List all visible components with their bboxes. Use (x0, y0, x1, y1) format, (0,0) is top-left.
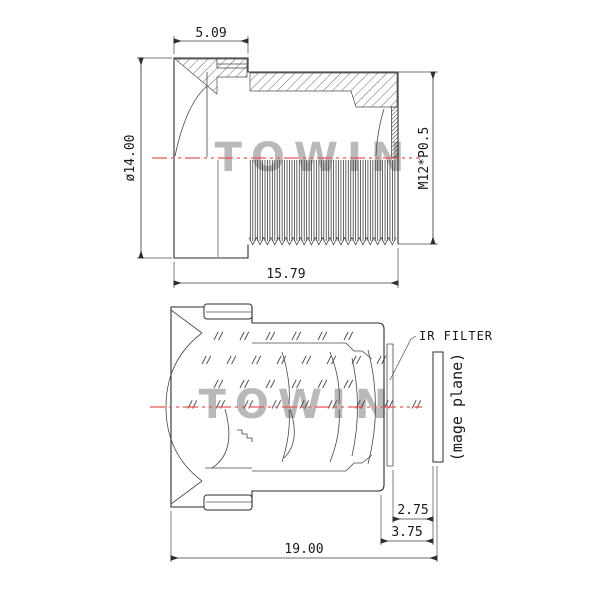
inner-step-top (252, 343, 372, 359)
inner-step-bottom (205, 455, 372, 471)
image-plane-label: (mage plane) (448, 353, 466, 461)
glass-mark (323, 332, 327, 340)
dim-rear-to-image: 3.75 (391, 525, 422, 540)
glass-mark (327, 356, 331, 364)
glass-mark (277, 356, 281, 364)
glass-mark (377, 356, 381, 364)
glass-mark (245, 332, 249, 340)
glass-mark (214, 332, 218, 340)
glass-mark (297, 332, 301, 340)
glass-mark (232, 356, 236, 364)
glass-mark (357, 356, 361, 364)
dim-total-track: 19.00 (284, 542, 323, 557)
glass-mark (302, 356, 306, 364)
glass-mark (207, 356, 211, 364)
front-dome-curve (175, 86, 207, 156)
front-ring-top (204, 304, 252, 319)
thread-crest-zigzag (249, 238, 396, 245)
glass-mark (227, 356, 231, 364)
glass-mark (318, 332, 322, 340)
glass-mark (266, 332, 270, 340)
glass-mark (219, 332, 223, 340)
glass-mark (271, 332, 275, 340)
glass-mark (257, 356, 261, 364)
ir-filter-label: IR FILTER (419, 329, 493, 343)
head-bottom-outline (174, 245, 248, 258)
technical-drawing-canvas: TOWIN TOWIN 5.09 ø14.00 (0, 0, 600, 600)
glass-mark (292, 332, 296, 340)
glass-mark (344, 332, 348, 340)
bottom-view-section: IR FILTER (mage plane) 2.75 3.75 19.00 (150, 304, 493, 562)
dim-filter-to-image: 2.75 (397, 503, 428, 518)
dim-front-width: 5.09 (195, 26, 226, 41)
glass-mark (307, 356, 311, 364)
glass-mark (240, 332, 244, 340)
glass-mark (202, 356, 206, 364)
dim-thread-spec: M12*P0.5 (417, 127, 432, 190)
dim-outer-diameter: ø14.00 (123, 135, 138, 182)
image-plane-bar (433, 352, 443, 462)
glass-mark (349, 332, 353, 340)
ir-filter-leader (390, 336, 416, 380)
watermark-bottom: TOWIN (199, 382, 398, 428)
front-ring-bottom (204, 495, 252, 510)
barrel-section-hatch (250, 73, 397, 107)
rear-element-hatch (392, 107, 399, 157)
dim-barrel-length: 15.79 (266, 267, 305, 282)
glass-mark (252, 356, 256, 364)
